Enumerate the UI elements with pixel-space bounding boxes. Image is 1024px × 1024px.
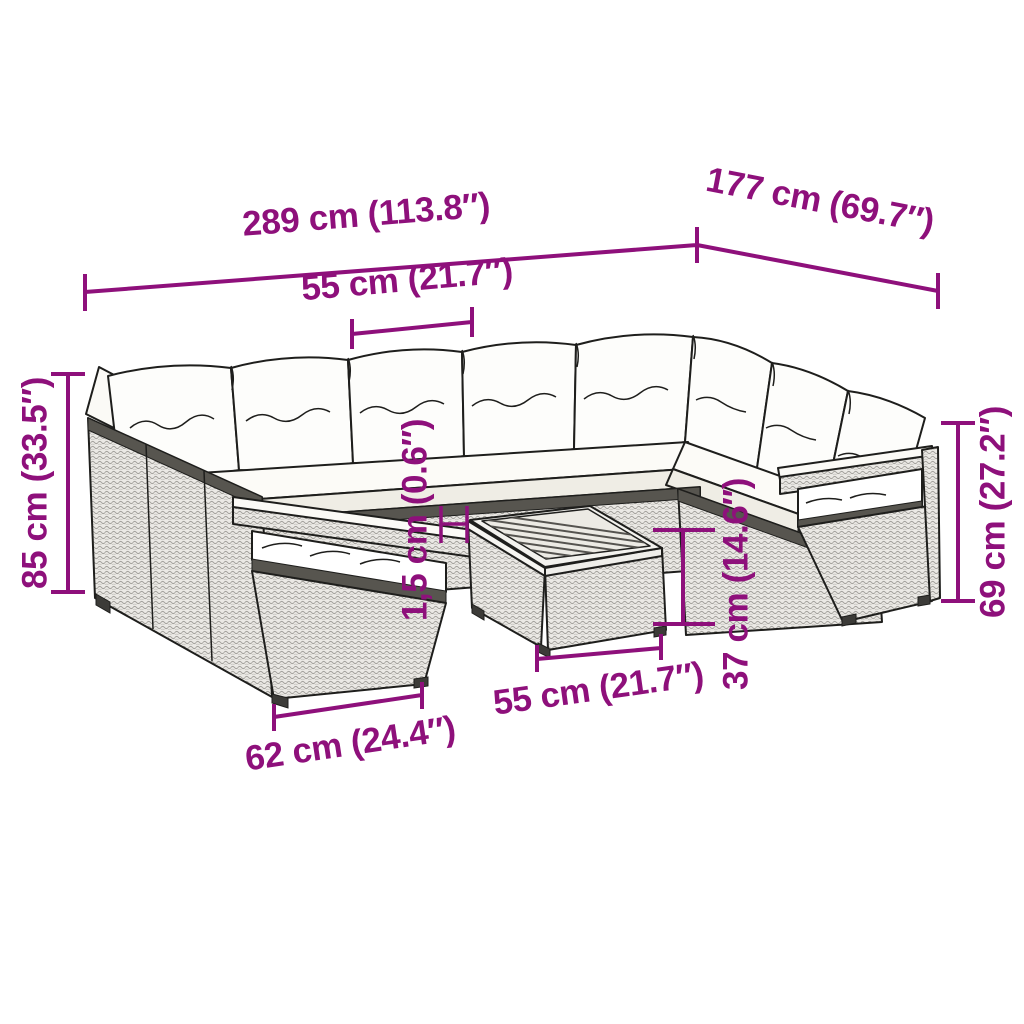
dim-overall-depth-line — [697, 245, 938, 309]
dim-back-height-line — [51, 374, 85, 592]
dim-tabletop-thickness-label: 1,5 cm (0.6″) — [395, 419, 434, 621]
dim-right-height-line — [941, 423, 975, 601]
diagram-svg: 289 cm (113.8″) 177 cm (69.7″) 55 cm (21… — [0, 0, 1024, 1024]
dim-seat-width-line — [352, 307, 472, 349]
dim-back-height-label: 85 cm (33.5″) — [15, 377, 54, 589]
dim-table-width: 55 cm (21.7″) — [491, 634, 706, 723]
dim-seat-width-label: 55 cm (21.7″) — [300, 251, 515, 308]
dim-overall-depth: 177 cm (69.7″) — [697, 160, 938, 309]
dim-table-height-label: 37 cm (14.6″) — [716, 478, 755, 690]
dim-right-height: 69 cm (27.2″) — [941, 406, 1012, 618]
dim-seat-width: 55 cm (21.7″) — [300, 251, 515, 349]
dim-overall-width-label: 289 cm (113.8″) — [241, 185, 491, 243]
dim-overall-depth-label: 177 cm (69.7″) — [703, 160, 937, 242]
dim-table-width-label: 55 cm (21.7″) — [491, 655, 706, 723]
product-dimension-diagram: 289 cm (113.8″) 177 cm (69.7″) 55 cm (21… — [0, 0, 1024, 1024]
dim-back-height: 85 cm (33.5″) — [15, 374, 85, 592]
dim-right-height-label: 69 cm (27.2″) — [973, 406, 1012, 618]
